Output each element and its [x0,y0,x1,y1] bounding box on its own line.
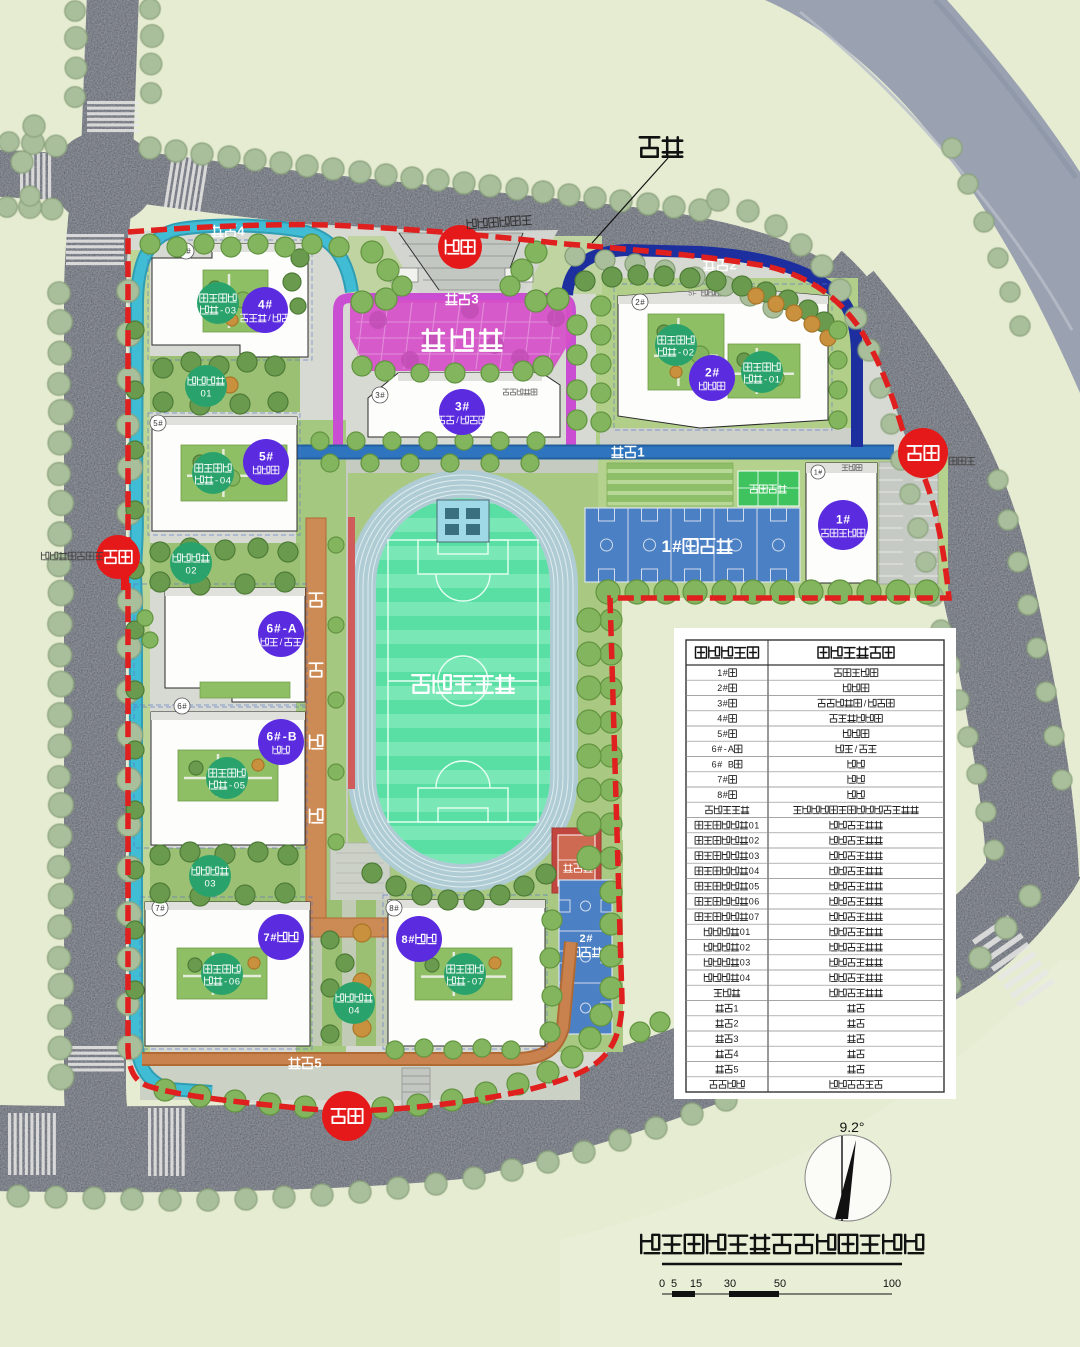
svg-text:#: # [712,365,719,379]
svg-text:6: 6 [235,976,240,987]
svg-text:5: 5 [259,449,266,463]
svg-text:2: 2 [580,933,586,945]
svg-text:#: # [723,790,728,800]
svg-text:#: # [717,744,722,754]
svg-text:F: F [692,291,696,298]
svg-text:4: 4 [354,1005,359,1016]
svg-text:5: 5 [671,1278,677,1290]
svg-text:3: 3 [471,292,478,307]
svg-text:0: 0 [659,1278,665,1290]
svg-text:0: 0 [185,565,190,576]
svg-text:#: # [586,933,592,945]
svg-text:1: 1 [775,374,780,385]
svg-text:0: 0 [683,347,688,358]
svg-text:0: 0 [472,976,477,987]
svg-text:2: 2 [733,1019,738,1029]
svg-text:#: # [640,298,645,307]
svg-text:5: 5 [314,1056,321,1071]
svg-text:#: # [723,775,728,785]
svg-text:6: 6 [712,744,717,754]
svg-text:B: B [288,729,297,743]
svg-text:-: - [467,976,470,987]
svg-text:0: 0 [769,374,774,385]
svg-text:#: # [723,714,728,724]
svg-text:#: # [274,621,281,635]
svg-text:0: 0 [740,927,745,937]
svg-text:0: 0 [749,836,754,846]
svg-text:#: # [158,419,163,428]
svg-text:7: 7 [478,976,483,987]
svg-text:3: 3 [745,958,750,968]
svg-text:7: 7 [264,932,270,944]
svg-text:#: # [818,470,822,477]
svg-text:5: 5 [733,1064,738,1074]
svg-text:8: 8 [402,934,408,946]
svg-text:1: 1 [745,927,750,937]
svg-text:6: 6 [266,729,273,743]
svg-text:-: - [724,744,727,754]
svg-text:1: 1 [661,537,670,556]
svg-text:0: 0 [229,976,234,987]
svg-text:3: 3 [455,399,462,413]
svg-text:0: 0 [348,1005,353,1016]
svg-text:3: 3 [717,698,722,708]
svg-text:#: # [462,399,469,413]
svg-text:5: 5 [754,881,759,891]
svg-text:-: - [224,976,227,987]
svg-text:1: 1 [206,388,211,399]
svg-text:6: 6 [266,621,273,635]
svg-text:B: B [728,759,734,769]
svg-text:2: 2 [705,365,712,379]
svg-text:#: # [274,729,281,743]
svg-text:#: # [717,759,722,769]
svg-text:0: 0 [749,820,754,830]
svg-text:0: 0 [749,851,754,861]
svg-text:0: 0 [740,942,745,952]
svg-text:#: # [265,297,272,311]
svg-text:A: A [288,621,297,635]
svg-text:#: # [182,702,187,711]
svg-text:3: 3 [754,851,759,861]
svg-text:#: # [723,668,728,678]
svg-text:5: 5 [240,780,245,791]
svg-text:6: 6 [754,897,759,907]
svg-text:100: 100 [883,1278,901,1290]
svg-text:#: # [723,729,728,739]
svg-text:#: # [672,537,682,556]
svg-text:1: 1 [754,820,759,830]
svg-text:0: 0 [234,780,239,791]
svg-text:3: 3 [733,1034,738,1044]
svg-text:1: 1 [717,668,722,678]
svg-text:-: - [220,305,223,316]
svg-text:4: 4 [258,297,265,311]
svg-text:0: 0 [740,958,745,968]
svg-text:0: 0 [204,878,209,889]
svg-text:9.2°: 9.2° [839,1119,864,1135]
svg-text:5: 5 [717,729,722,739]
svg-text:-: - [283,621,287,635]
svg-text:7: 7 [754,912,759,922]
svg-text:0: 0 [200,388,205,399]
svg-text:1: 1 [637,445,644,460]
svg-text:#: # [160,904,165,913]
svg-text:4: 4 [226,475,231,486]
svg-text:4: 4 [733,1049,738,1059]
svg-text:-: - [215,475,218,486]
svg-text:-: - [678,347,681,358]
svg-text:8: 8 [717,790,722,800]
svg-text:7: 7 [717,775,722,785]
svg-text:0: 0 [220,475,225,486]
svg-text:15: 15 [690,1278,702,1290]
svg-text:#: # [723,683,728,693]
svg-text:0: 0 [225,305,230,316]
svg-text:2: 2 [754,836,759,846]
svg-text:30: 30 [724,1278,736,1290]
svg-text:#: # [394,904,399,913]
svg-text:1: 1 [733,1003,738,1013]
svg-text:2: 2 [717,683,722,693]
svg-text:-: - [229,780,232,791]
svg-text:0: 0 [749,881,754,891]
svg-text:-: - [283,729,287,743]
svg-text:A: A [728,744,734,754]
svg-text:0: 0 [749,897,754,907]
svg-text:50: 50 [774,1278,786,1290]
svg-text:1: 1 [814,470,818,477]
svg-text:4: 4 [745,973,750,983]
svg-text:#: # [380,391,385,400]
svg-text:3: 3 [231,305,236,316]
svg-text:#: # [266,449,273,463]
svg-text:0: 0 [749,866,754,876]
svg-text:2: 2 [745,942,750,952]
svg-text:0: 0 [740,973,745,983]
svg-text:-: - [764,374,767,385]
svg-text:4: 4 [717,714,722,724]
svg-text:#: # [843,512,850,526]
svg-text:#: # [723,698,728,708]
svg-text:3: 3 [210,878,215,889]
svg-text:#: # [408,934,414,946]
svg-text:2: 2 [191,565,196,576]
svg-text:1: 1 [836,512,843,526]
svg-text:2: 2 [689,347,694,358]
svg-text:#: # [270,932,276,944]
svg-text:4: 4 [754,866,759,876]
svg-text:6: 6 [712,759,717,769]
svg-text:0: 0 [749,912,754,922]
